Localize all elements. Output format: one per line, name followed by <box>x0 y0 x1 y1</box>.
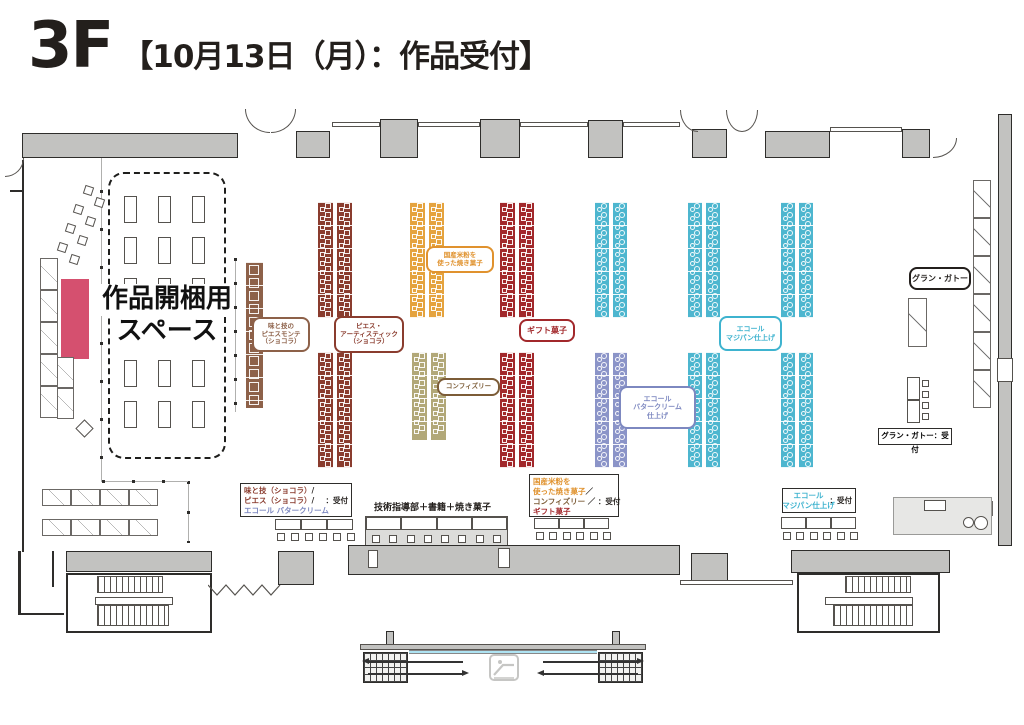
unpacking-table <box>124 196 137 223</box>
booth-label-ecole-buttercream: エコールバタークリーム仕上げ <box>619 386 696 429</box>
shelf-cell <box>71 489 100 506</box>
booth-unit-marker <box>419 353 425 359</box>
booth-strip <box>706 202 720 318</box>
booth-unit-marker <box>805 248 811 254</box>
booth-unit-marker <box>601 293 607 299</box>
booth-unit-marker <box>787 293 793 299</box>
booth-unit-marker <box>526 389 532 395</box>
booth-unit-marker <box>619 275 625 281</box>
unpacking-table <box>192 237 205 264</box>
tech-counter-table <box>366 517 401 530</box>
booth-unit-marker <box>325 203 331 209</box>
booth-unit-marker <box>712 425 718 431</box>
booth-unit-marker <box>417 302 423 308</box>
booth-unit-marker <box>344 257 350 263</box>
booth-unit-marker <box>712 284 718 290</box>
booth-label-confiserie: コンフィズリー <box>437 378 500 396</box>
tech-counter-chair <box>407 535 415 543</box>
booth-unit-marker <box>507 353 513 359</box>
service-fixture <box>963 517 974 528</box>
booth-unit-marker <box>526 425 532 431</box>
door-arc <box>933 138 957 158</box>
grand-gateau-chair <box>922 380 929 387</box>
booth-unit-marker <box>325 362 331 368</box>
booth-unit-marker <box>526 284 532 290</box>
booth-strip <box>781 202 795 318</box>
booth-strip <box>337 202 352 318</box>
reception-box-row: ピエス（ショコラ）/：受付 <box>244 496 348 506</box>
booth-unit-marker <box>619 257 625 263</box>
shelf-cell <box>40 354 58 386</box>
booth-unit-marker <box>417 275 423 281</box>
booth-unit-marker <box>694 380 700 386</box>
booth-unit-marker <box>787 302 793 308</box>
booth-unit-marker <box>787 257 793 263</box>
reception-box-text: エコール <box>794 491 824 501</box>
booth-unit-marker <box>325 311 331 317</box>
reception-box-text: ピエス（ショコラ） <box>244 496 312 506</box>
booth-unit-marker <box>712 371 718 377</box>
booth-unit-marker <box>438 416 444 422</box>
booth-unit-marker <box>344 461 350 467</box>
booth-unit-marker <box>507 371 513 377</box>
booth-label-kokusan-komeko: 国産米粉を使った焼き菓子 <box>426 246 494 273</box>
booth-unit-marker <box>344 239 350 245</box>
booth-unit-marker <box>805 371 811 377</box>
booth-unit-marker <box>694 362 700 368</box>
booth-unit-marker <box>787 203 793 209</box>
booth-unit-marker <box>805 302 811 308</box>
booth-unit-marker <box>325 452 331 458</box>
booth-unit-marker <box>526 362 532 368</box>
booth-unit-marker <box>805 230 811 236</box>
wall-line <box>10 190 22 192</box>
booth-unit-marker <box>787 266 793 272</box>
unpacking-table <box>192 360 205 387</box>
booth-unit-marker <box>619 221 625 227</box>
reception-chair <box>576 532 584 540</box>
booth-unit-marker <box>526 266 532 272</box>
reception-chair <box>850 532 858 540</box>
booth-unit-marker <box>805 362 811 368</box>
booth-unit-marker <box>619 212 625 218</box>
booth-unit-marker <box>712 380 718 386</box>
booth-unit-marker <box>344 416 350 422</box>
reception-chair <box>319 533 327 541</box>
booth-unit-marker <box>507 311 513 317</box>
booth-strip <box>613 202 627 318</box>
window-wall <box>680 580 793 585</box>
booth-unit-marker <box>507 362 513 368</box>
reception-box-reception-chocolat-buttercream: 味と技（ショコラ）/ピエス（ショコラ）/：受付エコール バタークリーム <box>240 483 352 517</box>
reception-table <box>301 519 327 530</box>
booth-unit-marker <box>419 398 425 404</box>
booth-unit-marker <box>249 369 259 379</box>
booth-unit-marker <box>507 257 513 263</box>
booth-unit-marker <box>507 398 513 404</box>
booth-unit-marker <box>601 380 607 386</box>
booth-unit-marker <box>419 380 425 386</box>
diamond-chair <box>75 419 93 437</box>
booth-unit-marker <box>438 407 444 413</box>
scattered-chair <box>65 223 76 234</box>
reception-box-reception-komeko-confiserie-gift: 国産米粉を使った焼き菓子／コンフィズリー ／ ：受付ギフト菓子 <box>529 474 619 517</box>
booth-unit-marker <box>787 353 793 359</box>
booth-unit-marker <box>507 461 513 467</box>
booth-unit-marker <box>526 398 532 404</box>
booth-unit-marker <box>712 293 718 299</box>
unpacking-table <box>192 401 205 428</box>
booth-unit-marker <box>805 221 811 227</box>
booth-label-text: （ショコラ） <box>336 338 402 346</box>
booth-unit-marker <box>787 284 793 290</box>
booth-strip <box>519 202 534 318</box>
booth-unit-marker <box>344 380 350 386</box>
booth-unit-marker <box>787 380 793 386</box>
booth-unit-marker <box>694 353 700 359</box>
wall-segment <box>765 131 830 158</box>
booth-unit-marker <box>417 311 423 317</box>
booth-strip <box>318 352 333 468</box>
reception-box-reception-ecole-marzipan: ：受付エコールマジパン仕上げ <box>782 488 856 513</box>
reception-chair <box>603 532 611 540</box>
booth-unit-marker <box>712 407 718 413</box>
booth-unit-marker <box>712 353 718 359</box>
wall-line <box>18 613 64 615</box>
booth-unit-marker <box>787 461 793 467</box>
wall-segment <box>380 119 418 158</box>
booth-unit-marker <box>619 362 625 368</box>
booth-unit-marker <box>526 212 532 218</box>
booth-unit-marker <box>805 311 811 317</box>
booth-unit-marker <box>805 203 811 209</box>
booth-unit-marker <box>526 353 532 359</box>
shelf-cell <box>40 290 58 322</box>
booth-label-text: バタークリーム <box>621 403 694 411</box>
booth-unit-marker <box>526 230 532 236</box>
scattered-chair <box>73 204 84 215</box>
booth-unit-marker <box>344 434 350 440</box>
booth-unit-marker <box>712 257 718 263</box>
door-slit <box>498 548 510 568</box>
booth-unit-marker <box>526 275 532 281</box>
booth-unit-marker <box>249 356 259 366</box>
booth-unit-marker <box>787 230 793 236</box>
window-wall <box>418 122 480 127</box>
scattered-chair <box>83 185 94 196</box>
booth-unit-marker <box>438 371 444 377</box>
booth-unit-marker <box>419 389 425 395</box>
booth-unit-marker <box>526 380 532 386</box>
scattered-chair <box>57 242 68 253</box>
booth-unit-marker <box>694 302 700 308</box>
door-arc <box>726 110 742 132</box>
booth-unit-marker <box>787 434 793 440</box>
stair-landing <box>95 597 173 605</box>
stair-flight <box>845 576 911 593</box>
unpacking-table <box>124 360 137 387</box>
booth-unit-marker <box>249 291 259 301</box>
wall-segment <box>386 631 394 645</box>
booth-unit-marker <box>619 248 625 254</box>
tech-counter-table <box>401 517 436 530</box>
shelf-cell <box>129 489 158 506</box>
unpacking-space-label: 作品開梱用 スペース <box>94 284 240 347</box>
dotted-partition-line <box>102 480 188 483</box>
booth-unit-marker <box>601 221 607 227</box>
reception-table <box>781 517 806 529</box>
booth-unit-marker <box>787 389 793 395</box>
booth-label-text: （ショコラ） <box>254 338 308 346</box>
wall-segment <box>348 545 680 575</box>
booth-unit-marker <box>619 284 625 290</box>
booth-unit-marker <box>436 311 442 317</box>
reception-box-text: 味と技（ショコラ） <box>244 486 312 496</box>
booth-unit-marker <box>507 407 513 413</box>
booth-unit-marker <box>694 266 700 272</box>
wall-segment <box>902 129 930 158</box>
booth-unit-marker <box>694 257 700 263</box>
booth-unit-marker <box>507 284 513 290</box>
booth-unit-marker <box>436 239 442 245</box>
door-arc <box>245 109 270 133</box>
reception-box-text: ／ <box>585 497 598 507</box>
booth-unit-marker <box>787 407 793 413</box>
escalator-arrow-head <box>637 658 644 664</box>
booth-unit-marker <box>419 416 425 422</box>
wall-line <box>52 551 54 587</box>
booth-unit-marker <box>694 461 700 467</box>
shelf-cell <box>40 322 58 354</box>
booth-strip <box>799 202 813 318</box>
booth-unit-marker <box>601 353 607 359</box>
booth-unit-marker <box>619 302 625 308</box>
booth-unit-marker <box>712 389 718 395</box>
booth-unit-marker <box>344 284 350 290</box>
shelf-cell <box>973 332 991 370</box>
escalator-arrow-line <box>368 673 463 675</box>
shelf-cell <box>42 519 71 536</box>
booth-unit-marker <box>507 239 513 245</box>
grand-gateau-chair <box>922 391 929 398</box>
booth-unit-marker <box>419 362 425 368</box>
booth-unit-marker <box>787 362 793 368</box>
booth-unit-marker <box>619 230 625 236</box>
booth-unit-marker <box>805 353 811 359</box>
booth-unit-marker <box>712 443 718 449</box>
booth-unit-marker <box>344 425 350 431</box>
tech-counter-table <box>472 517 507 530</box>
booth-unit-marker <box>805 239 811 245</box>
booth-unit-marker <box>526 293 532 299</box>
reception-chair <box>783 532 791 540</box>
booth-unit-marker <box>787 452 793 458</box>
booth-strip <box>500 352 515 468</box>
reception-table <box>584 518 609 529</box>
booth-unit-marker <box>344 407 350 413</box>
booth-unit-marker <box>344 212 350 218</box>
reception-box-row: 国産米粉を <box>533 477 615 487</box>
unpacking-table <box>158 237 171 264</box>
reception-chair <box>549 532 557 540</box>
booth-unit-marker <box>694 371 700 377</box>
booth-unit-marker <box>601 284 607 290</box>
booth-unit-marker <box>805 425 811 431</box>
booth-unit-marker <box>805 389 811 395</box>
booth-unit-marker <box>712 221 718 227</box>
booth-unit-marker <box>344 443 350 449</box>
reception-box-text: ：受付 <box>326 496 349 506</box>
booth-strip <box>337 352 352 468</box>
booth-unit-marker <box>526 221 532 227</box>
booth-label-text: グラン・ガトー <box>911 274 969 284</box>
tech-counter-chair <box>476 535 484 543</box>
unpacking-table <box>158 360 171 387</box>
reception-box-text: / <box>312 496 315 506</box>
stair-landing <box>825 597 913 605</box>
booth-unit-marker <box>325 230 331 236</box>
booth-unit-marker <box>526 407 532 413</box>
service-table <box>924 500 946 511</box>
booth-unit-marker <box>436 221 442 227</box>
booth-unit-marker <box>805 257 811 263</box>
booth-label-piece-artistique: ピエス・アーティスティック（ショコラ） <box>334 316 404 353</box>
booth-unit-marker <box>787 248 793 254</box>
booth-unit-marker <box>619 293 625 299</box>
booth-unit-marker <box>805 434 811 440</box>
tech-counter-chair <box>424 535 432 543</box>
shelf-cell <box>100 489 129 506</box>
wall-segment <box>296 131 330 158</box>
reception-chair <box>291 533 299 541</box>
booth-unit-marker <box>507 266 513 272</box>
booth-unit-marker <box>619 380 625 386</box>
shelf-cell <box>908 298 927 347</box>
booth-unit-marker <box>344 452 350 458</box>
service-fixture <box>974 516 988 530</box>
booth-strip <box>706 352 720 468</box>
floor-plan-3f: 3F 【10月13日（月）：作品受付】 作品開梱用 スペース 技術指導部＋書籍＋… <box>0 0 1024 725</box>
booth-unit-marker <box>694 443 700 449</box>
booth-unit-marker <box>805 380 811 386</box>
booth-unit-marker <box>325 284 331 290</box>
booth-strip <box>781 352 795 468</box>
wall-line <box>18 551 21 615</box>
booth-unit-marker <box>417 284 423 290</box>
reception-chair <box>590 532 598 540</box>
reception-box-row: ギフト菓子 <box>533 507 615 517</box>
booth-unit-marker <box>417 266 423 272</box>
booth-unit-marker <box>805 452 811 458</box>
booth-strip <box>500 202 515 318</box>
booth-unit-marker <box>417 239 423 245</box>
reception-table <box>327 519 353 530</box>
booth-unit-marker <box>805 461 811 467</box>
reception-chair <box>837 532 845 540</box>
booth-unit-marker <box>436 203 442 209</box>
booth-unit-marker <box>694 452 700 458</box>
unpacking-table <box>124 401 137 428</box>
booth-strip <box>318 202 333 318</box>
wall-segment <box>66 551 212 572</box>
booth-unit-marker <box>601 362 607 368</box>
booth-unit-marker <box>507 302 513 308</box>
tech-counter-chair <box>493 535 501 543</box>
booth-unit-marker <box>526 257 532 263</box>
reception-chair <box>823 532 831 540</box>
reception-box-row: エコール <box>786 491 831 501</box>
booth-unit-marker <box>601 248 607 254</box>
grand-gateau-chair <box>922 402 929 409</box>
booth-unit-marker <box>507 425 513 431</box>
booth-unit-marker <box>787 239 793 245</box>
booth-unit-marker <box>805 266 811 272</box>
shelf-cell <box>973 256 991 294</box>
reception-chair <box>796 532 804 540</box>
booth-unit-marker <box>805 398 811 404</box>
reception-box-text: 国産米粉を <box>533 477 571 487</box>
booth-unit-marker <box>694 293 700 299</box>
booth-unit-marker <box>325 353 331 359</box>
booth-unit-marker <box>436 275 442 281</box>
booth-unit-marker <box>325 371 331 377</box>
shelf-cell <box>57 388 74 419</box>
booth-unit-marker <box>601 302 607 308</box>
booth-unit-marker <box>601 230 607 236</box>
booth-unit-marker <box>249 304 259 314</box>
booth-unit-marker <box>694 425 700 431</box>
booth-unit-marker <box>325 416 331 422</box>
booth-unit-marker <box>601 416 607 422</box>
reception-chair <box>347 533 355 541</box>
booth-unit-marker <box>694 284 700 290</box>
booth-unit-marker <box>417 248 423 254</box>
unpacking-table <box>124 237 137 264</box>
booth-label-text: エコール <box>721 325 780 333</box>
booth-unit-marker <box>787 371 793 377</box>
booth-unit-marker <box>712 248 718 254</box>
booth-unit-marker <box>805 293 811 299</box>
booth-unit-marker <box>417 212 423 218</box>
booth-label-grand-gateau: グラン・ガトー <box>909 267 971 290</box>
booth-label-text: ギフト菓子 <box>521 326 573 336</box>
escalator-arrow-head <box>462 670 469 676</box>
grand-gateau-chair <box>922 413 929 420</box>
booth-unit-marker <box>507 203 513 209</box>
scattered-chair <box>77 235 88 246</box>
booth-unit-marker <box>419 425 425 431</box>
booth-unit-marker <box>526 452 532 458</box>
booth-unit-marker <box>417 293 423 299</box>
booth-unit-marker <box>712 416 718 422</box>
booth-unit-marker <box>526 248 532 254</box>
booth-label-gift-kashi: ギフト菓子 <box>519 319 575 342</box>
booth-unit-marker <box>601 239 607 245</box>
reception-chair <box>305 533 313 541</box>
booth-unit-marker <box>344 389 350 395</box>
booth-unit-marker <box>344 275 350 281</box>
booth-unit-marker <box>805 275 811 281</box>
escalator-arrow-head <box>362 658 369 664</box>
booth-unit-marker <box>526 461 532 467</box>
booth-unit-marker <box>438 353 444 359</box>
booth-unit-marker <box>712 311 718 317</box>
booth-unit-marker <box>601 371 607 377</box>
wall-segment <box>480 119 520 158</box>
reception-box-text: ：受付 <box>598 497 621 507</box>
shelf-cell <box>973 218 991 256</box>
booth-unit-marker <box>619 353 625 359</box>
